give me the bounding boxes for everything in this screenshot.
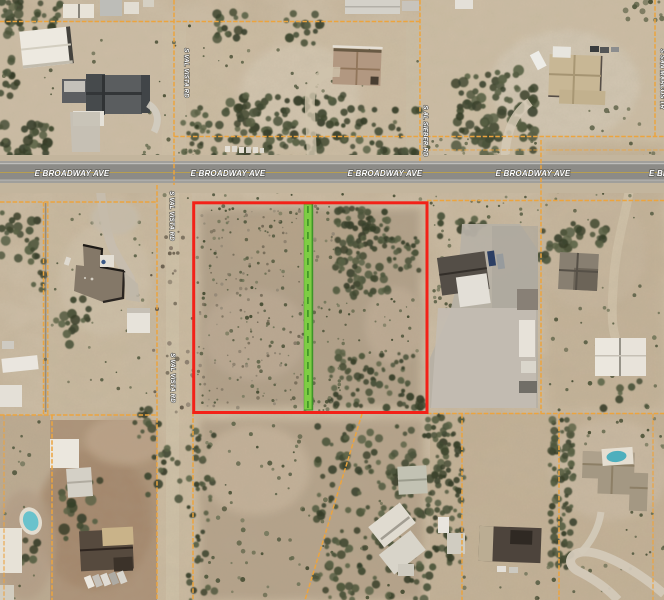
- svg-text:S AL SIEBER RD: S AL SIEBER RD: [422, 105, 429, 157]
- svg-text:E BRO: E BRO: [649, 169, 664, 178]
- svg-text:E BROADWAY AVE: E BROADWAY AVE: [35, 169, 110, 178]
- svg-text:E BROADWAY AVE: E BROADWAY AVE: [348, 169, 423, 178]
- svg-text:S VAL VISTA RD: S VAL VISTA RD: [169, 353, 176, 403]
- svg-text:E BROADWAY AVE: E BROADWAY AVE: [191, 169, 266, 178]
- svg-text:E BROADWAY AVE: E BROADWAY AVE: [496, 169, 571, 178]
- svg-text:S SAN MARCOS TR: S SAN MARCOS TR: [659, 49, 664, 110]
- svg-text:S VAL VISTA RD: S VAL VISTA RD: [183, 48, 190, 98]
- svg-text:S VAL VISTA RD: S VAL VISTA RD: [168, 191, 175, 241]
